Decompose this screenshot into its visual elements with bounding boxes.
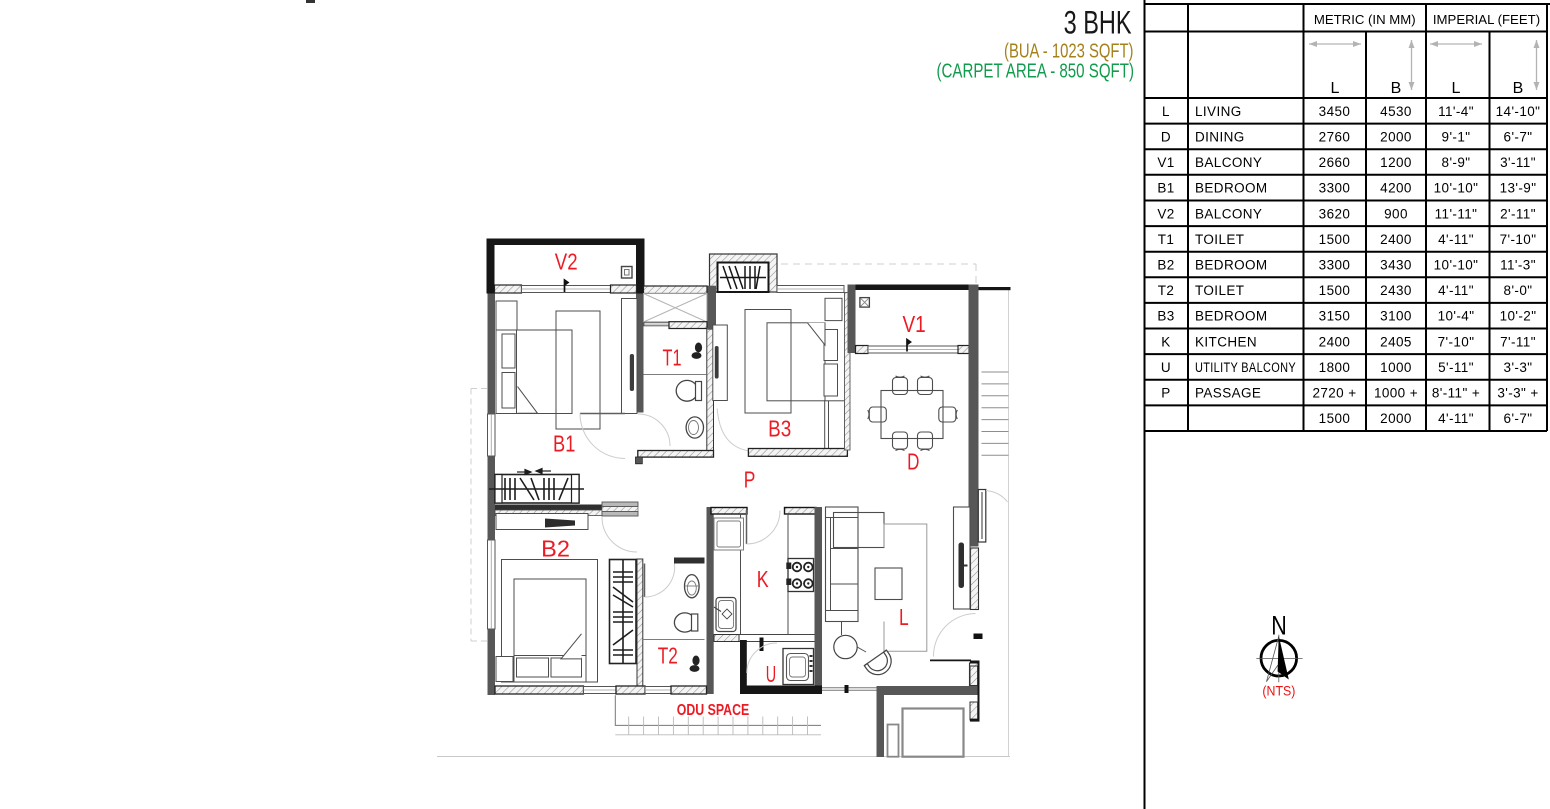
svg-text:2000: 2000 (1380, 129, 1412, 144)
svg-text:4'-11": 4'-11" (1438, 283, 1474, 298)
svg-text:(NTS): (NTS) (1262, 683, 1295, 698)
svg-text:10'-10": 10'-10" (1434, 258, 1479, 273)
svg-text:TOILET: TOILET (1195, 232, 1244, 247)
svg-text:2760: 2760 (1319, 129, 1351, 144)
svg-text:3'-3": 3'-3" (1504, 360, 1533, 375)
svg-text:B1: B1 (553, 431, 575, 457)
svg-text:METRIC (IN MM): METRIC (IN MM) (1314, 12, 1416, 27)
svg-text:U: U (766, 661, 776, 687)
svg-text:TOILET: TOILET (1195, 283, 1244, 298)
svg-text:BEDROOM: BEDROOM (1195, 181, 1268, 196)
svg-text:BALCONY: BALCONY (1195, 206, 1262, 221)
svg-text:2660: 2660 (1319, 155, 1351, 170)
svg-text:B3: B3 (1157, 309, 1174, 324)
svg-text:3100: 3100 (1380, 309, 1412, 324)
svg-text:L: L (899, 604, 909, 630)
svg-text:(CARPET AREA - 850 SQFT): (CARPET AREA - 850 SQFT) (937, 60, 1135, 83)
svg-text:1500: 1500 (1319, 232, 1351, 247)
svg-text:V2: V2 (555, 248, 578, 274)
svg-text:1000 +: 1000 + (1374, 386, 1418, 401)
svg-text:4'-11": 4'-11" (1438, 411, 1474, 426)
svg-text:3300: 3300 (1319, 258, 1351, 273)
svg-text:L: L (1331, 80, 1340, 97)
svg-text:V2: V2 (1157, 206, 1174, 221)
svg-text:2405: 2405 (1380, 334, 1412, 349)
svg-text:V1: V1 (903, 311, 926, 337)
svg-text:T1: T1 (1158, 232, 1175, 247)
svg-text:1000: 1000 (1380, 360, 1412, 375)
svg-text:900: 900 (1384, 206, 1408, 221)
svg-text:11'-4": 11'-4" (1438, 104, 1474, 119)
svg-text:4530: 4530 (1380, 104, 1412, 119)
svg-text:2720 +: 2720 + (1312, 386, 1356, 401)
svg-text:1500: 1500 (1319, 411, 1351, 426)
svg-text:6'-7": 6'-7" (1504, 411, 1533, 426)
svg-text:1200: 1200 (1380, 155, 1412, 170)
svg-text:LIVING: LIVING (1195, 104, 1242, 119)
svg-text:PASSAGE: PASSAGE (1195, 386, 1261, 401)
svg-text:B3: B3 (768, 415, 791, 441)
svg-text:B2: B2 (1157, 258, 1174, 273)
svg-text:8'-11" +: 8'-11" + (1432, 386, 1480, 401)
svg-text:T1: T1 (663, 345, 682, 371)
svg-text:2400: 2400 (1380, 232, 1412, 247)
svg-text:V1: V1 (1157, 155, 1174, 170)
svg-text:B: B (1391, 80, 1402, 97)
svg-text:5'-11": 5'-11" (1438, 360, 1474, 375)
svg-text:K: K (1161, 334, 1170, 349)
svg-text:4'-11": 4'-11" (1438, 232, 1474, 247)
svg-text:D: D (907, 449, 919, 475)
svg-text:9'-1": 9'-1" (1442, 129, 1471, 144)
svg-text:T2: T2 (658, 642, 678, 668)
svg-text:7'-11": 7'-11" (1500, 334, 1536, 349)
svg-text:10'-10": 10'-10" (1434, 181, 1479, 196)
svg-text:2000: 2000 (1380, 411, 1412, 426)
svg-text:DINING: DINING (1195, 129, 1245, 144)
svg-text:10'-4": 10'-4" (1438, 309, 1475, 324)
svg-text:10'-2": 10'-2" (1500, 309, 1537, 324)
svg-text:IMPERIAL (FEET): IMPERIAL (FEET) (1433, 12, 1540, 27)
svg-text:BEDROOM: BEDROOM (1195, 258, 1268, 273)
svg-text:3450: 3450 (1319, 104, 1351, 119)
svg-text:U: U (1161, 360, 1171, 375)
svg-text:D: D (1161, 129, 1171, 144)
svg-text:3'-3" +: 3'-3" + (1497, 386, 1538, 401)
svg-text:L: L (1452, 80, 1461, 97)
svg-text:ODU SPACE: ODU SPACE (677, 702, 750, 719)
svg-text:8'-0": 8'-0" (1504, 283, 1533, 298)
svg-text:KITCHEN: KITCHEN (1195, 334, 1257, 349)
svg-text:6'-7": 6'-7" (1504, 129, 1533, 144)
svg-text:3300: 3300 (1319, 181, 1351, 196)
svg-text:P: P (744, 466, 756, 492)
svg-text:P: P (1161, 386, 1170, 401)
svg-text:B: B (1513, 80, 1524, 97)
svg-text:B2: B2 (541, 535, 570, 561)
svg-text:3620: 3620 (1319, 206, 1351, 221)
svg-text:BEDROOM: BEDROOM (1195, 309, 1268, 324)
svg-text:14'-10": 14'-10" (1496, 104, 1541, 119)
svg-text:13'-9": 13'-9" (1500, 181, 1537, 196)
svg-text:1800: 1800 (1319, 360, 1351, 375)
svg-text:3'-11": 3'-11" (1500, 155, 1536, 170)
svg-text:1500: 1500 (1319, 283, 1351, 298)
svg-text:2400: 2400 (1319, 334, 1351, 349)
svg-text:11'-3": 11'-3" (1500, 258, 1536, 273)
svg-text:2430: 2430 (1380, 283, 1412, 298)
svg-text:7'-10": 7'-10" (1500, 232, 1537, 247)
svg-text:3430: 3430 (1380, 258, 1412, 273)
svg-text:K: K (757, 566, 769, 592)
svg-text:L: L (1162, 104, 1170, 119)
svg-text:UTILITY BALCONY: UTILITY BALCONY (1195, 360, 1296, 375)
svg-text:BALCONY: BALCONY (1195, 155, 1262, 170)
svg-text:2'-11": 2'-11" (1500, 206, 1536, 221)
svg-text:T2: T2 (1158, 283, 1175, 298)
svg-text:4200: 4200 (1380, 181, 1412, 196)
svg-text:3 BHK: 3 BHK (1064, 5, 1132, 41)
svg-text:7'-10": 7'-10" (1438, 334, 1475, 349)
svg-text:B1: B1 (1157, 181, 1174, 196)
svg-text:11'-11": 11'-11" (1435, 206, 1478, 221)
svg-text:3150: 3150 (1319, 309, 1351, 324)
svg-text:8'-9": 8'-9" (1442, 155, 1471, 170)
